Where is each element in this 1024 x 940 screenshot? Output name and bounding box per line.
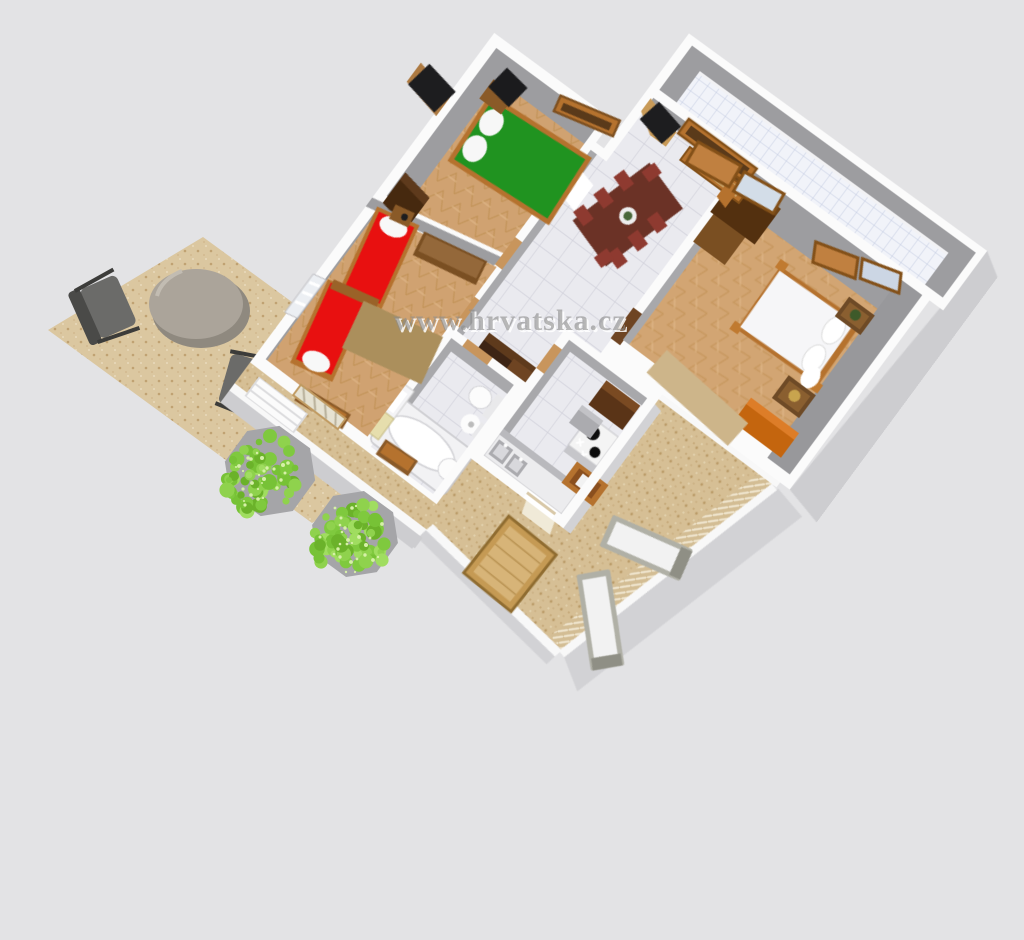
svg-text:www.hrvatska.cz: www.hrvatska.cz [393, 304, 626, 337]
